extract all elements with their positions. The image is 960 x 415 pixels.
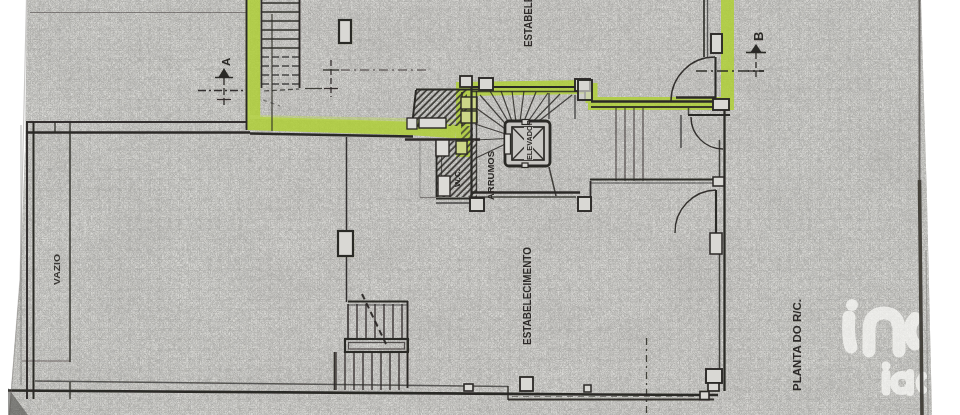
svg-text:PLANTA DO R/C.: PLANTA DO R/C. [791, 299, 803, 391]
svg-text:ELEVADOR: ELEVADOR [526, 120, 533, 160]
svg-text:VAZIO: VAZIO [52, 254, 62, 285]
svg-text:ESTABELECIMENTO: ESTABELECIMENTO [521, 247, 533, 345]
svg-text:ESTABELECIMENTO: ESTABELECIMENTO [522, 0, 534, 47]
svg-text:ARRUMOS: ARRUMOS [486, 151, 496, 200]
svg-text:W.C.: W.C. [453, 169, 462, 187]
svg-text:B: B [751, 32, 766, 41]
svg-text:A: A [220, 58, 232, 66]
